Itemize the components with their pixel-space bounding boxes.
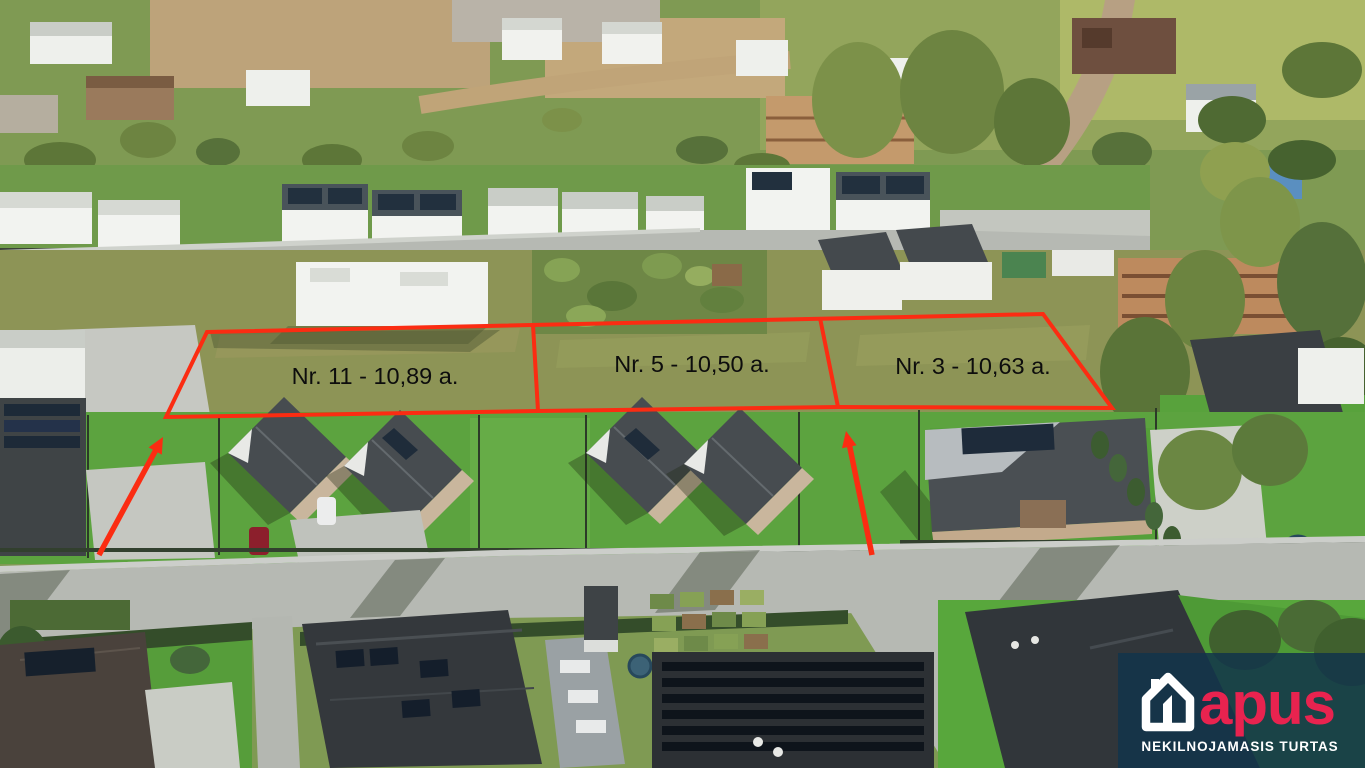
tagline-text: NEKILNOJAMASIS TURTAS bbox=[1141, 739, 1338, 754]
aerial-photo: Nr. 11 - 10,89 a. Nr. 5 - 10,50 a. Nr. 3… bbox=[0, 0, 1365, 768]
flat-solar-roof bbox=[652, 652, 934, 768]
logo-overlay: apus NEKILNOJAMASIS TURTAS bbox=[1118, 653, 1365, 768]
plot-label-3: Nr. 3 - 10,63 a. bbox=[895, 353, 1050, 379]
plot-label-11: Nr. 11 - 10,89 a. bbox=[292, 363, 459, 389]
plot-label-5: Nr. 5 - 10,50 a. bbox=[614, 351, 769, 377]
brand-text: apus bbox=[1199, 670, 1335, 737]
aerial-photo-canvas: Nr. 11 - 10,89 a. Nr. 5 - 10,50 a. Nr. 3… bbox=[0, 0, 1365, 768]
